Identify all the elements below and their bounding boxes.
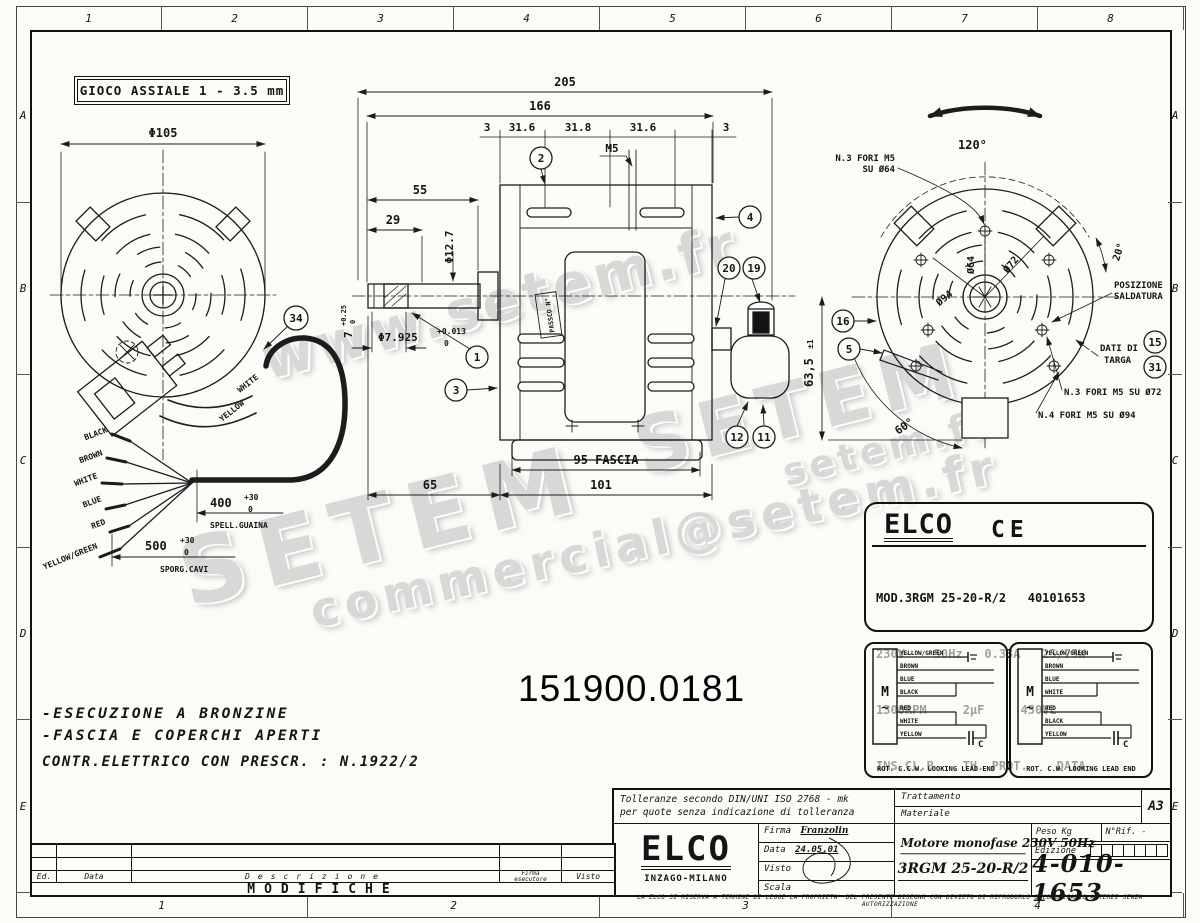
callout-5: 5: [846, 343, 853, 356]
label-saldatura: SALDATURA: [1114, 292, 1163, 302]
ccw-wire-4: BLACK: [900, 689, 918, 696]
data-label: Data: [764, 845, 786, 855]
dim-60deg: 60°: [892, 415, 916, 437]
note-line-1: -ESECUZIONE A BRONZINE: [42, 703, 419, 725]
title-elco-logo: ELCO: [641, 832, 731, 870]
ac-symbol: ~: [881, 701, 889, 716]
mod-data-label: Data: [57, 871, 132, 883]
terminal-box: [78, 329, 193, 436]
dim-key-dn: 0: [349, 320, 357, 324]
dim-500-dn: 0: [184, 548, 189, 557]
nameplate-line-1: MOD.3RGM 25-20-R/2 40101653: [876, 589, 1142, 608]
left-view: Φ105 400 +30 0 SPELL.GUAINA 500 +30 0 SP…: [42, 126, 345, 574]
mod-title: MODIFICHE: [32, 883, 614, 895]
drawing-sheet: www.setem.fr SETEM SETEM commercial@sete…: [0, 0, 1200, 923]
cw-wire-4: WHITE: [1045, 689, 1063, 696]
title-block: Tolleranze secondo DIN/UNI ISO 2768 - mk…: [612, 788, 1172, 897]
dim-o94: Ø94: [933, 288, 955, 309]
cw-wire-1: YELLOW/GREEN: [1045, 650, 1089, 657]
callout-11: 11: [757, 431, 771, 444]
wiring-diagram-cw: M ~ YELLOW/GREEN BROWN BLUE WHITE RED BL…: [1009, 642, 1153, 778]
wiring-diagram-ccw: M ~ YELLOW/GREEN BROWN BLUE BLACK RED WH…: [864, 642, 1008, 778]
dim-31-6-b: 31.6: [630, 121, 657, 134]
tolerance-line-2: per quote senza indicazione di tolleranz…: [620, 806, 888, 819]
passco-tag: PASSCO N°: [535, 292, 562, 338]
callout-19: 19: [747, 262, 760, 275]
dim-29: 29: [386, 213, 400, 227]
callout-12: 12: [730, 431, 743, 444]
note-line-3: CONTR.ELETTRICO CON PRESCR. : N.1922/2: [42, 754, 419, 770]
ce-mark: CE: [991, 519, 1029, 542]
dim-63-5: 63,5: [802, 358, 816, 387]
firma-signature: Franzolin: [801, 826, 849, 836]
dim-o64: Ø64: [965, 256, 977, 275]
dim-63-5-tol: ±1: [806, 339, 815, 349]
ccw-caption: ROT. C.C.W. LOOKING LEAD END: [866, 765, 1006, 773]
callout-1: 1: [474, 351, 481, 364]
dim-95-fascia: 95 FASCIA: [573, 453, 639, 467]
dim-205: 205: [554, 75, 576, 89]
callout-4: 4: [747, 211, 754, 224]
motor-symbol: M: [881, 685, 889, 700]
wire-label-black: BLACK: [83, 425, 109, 442]
dim-shaft: Φ7.925: [378, 331, 418, 344]
dim-12-7: Φ12.7: [443, 230, 456, 263]
callout-20: 20: [722, 262, 735, 275]
passco-label: PASSCO N°: [544, 297, 557, 333]
cw-wire-7: YELLOW: [1045, 731, 1067, 738]
front-view: 205 166 3 31.6 31.8 31.6 3 M5: [340, 75, 795, 500]
dim-400-dn: 0: [248, 505, 253, 514]
label-fori94: N.4 FORI M5 SU Ø94: [1038, 410, 1136, 421]
wire-label-brown: BROWN: [78, 448, 104, 465]
dim-3-right: 3: [723, 121, 730, 134]
dim-120deg: 120°: [958, 138, 987, 152]
cw-wire-3: BLUE: [1045, 676, 1060, 683]
dim-key-up: +0.25: [340, 305, 348, 326]
label-fori72: N.3 FORI M5 SU Ø72: [1064, 387, 1162, 398]
dim-105: Φ105: [149, 126, 178, 140]
legal-notice: LA ELCO SI RISERVA A TERMINE DI LEGGE LA…: [612, 894, 1168, 908]
tolerance-line-1: Tolleranze secondo DIN/UNI ISO 2768 - mk: [620, 793, 888, 806]
dim-key-group: 7 +0.25 0: [340, 305, 357, 338]
data-value: 24.05.01: [795, 845, 838, 855]
scala-label: Scala: [764, 883, 791, 893]
ccw-wire-6: WHITE: [900, 718, 918, 725]
dim-101: 101: [590, 478, 612, 492]
notes: -ESECUZIONE A BRONZINE -FASCIA E COPERCH…: [42, 703, 419, 770]
visto-label: Visto: [764, 864, 791, 874]
callout-16: 16: [836, 315, 850, 328]
dim-166: 166: [529, 99, 551, 113]
cw-caption: ROT. C.W. LOOKING LEAD END: [1011, 765, 1151, 773]
gioco-assiale-box: GIOCO ASSIALE 1 - 3.5 mm: [74, 76, 290, 105]
nrif-label: N°Rif. -: [1102, 824, 1171, 841]
dim-31-6-a: 31.6: [509, 121, 536, 134]
format-a3: A3: [1142, 790, 1170, 824]
title-elco-city: INZAGO-MILANO: [614, 874, 758, 884]
callout-3: 3: [453, 384, 460, 397]
cw-wire-5: RED: [1045, 705, 1056, 712]
firma-label: Firma: [764, 826, 791, 836]
ccw-wire-1: YELLOW/GREEN: [900, 650, 944, 657]
trattamento-label: Trattamento: [895, 790, 1142, 807]
peso-label: Peso Kg: [1032, 824, 1102, 841]
wire-label-red: RED: [90, 517, 107, 530]
wire-label-white: WHITE: [73, 471, 99, 488]
dim-55: 55: [413, 183, 427, 197]
label-posizione: POSIZIONE: [1114, 281, 1163, 291]
callout-15: 15: [1148, 336, 1161, 349]
label-targa: TARGA: [1104, 356, 1132, 366]
dim-20deg: 20°: [1111, 242, 1127, 263]
wire-label-yellow-green: YELLOW/GREEN: [42, 541, 99, 571]
part-number: 151900.0181: [518, 668, 745, 710]
dim-400-up: +30: [244, 493, 259, 502]
materiale-label: Materiale: [895, 807, 1142, 824]
cw-wire-6: BLACK: [1045, 718, 1063, 725]
callout-31: 31: [1148, 361, 1162, 374]
drawing-title-1: Motore monofase 230V 50Hz: [900, 837, 1025, 854]
ac-symbol: ~: [1026, 701, 1034, 716]
ccw-wire-5: RED: [900, 705, 911, 712]
dim-shaft-dn: 0: [444, 339, 449, 348]
drawing-title-2: 3RGM 25-20-R/2: [898, 861, 1029, 881]
drawing-number: 4-010-1653: [1032, 860, 1170, 896]
dim-500-up: +30: [180, 536, 195, 545]
label-dati-di: DATI DI: [1100, 344, 1138, 354]
dim-31-8: 31.8: [565, 121, 592, 134]
dim-500: 500: [145, 539, 167, 553]
dim-400: 400: [210, 496, 232, 510]
rear-view: Ø72 Ø64 Ø94 120° 20° 60° 63,5 ±1: [802, 108, 1166, 448]
nameplate: ELCO CE MOD.3RGM 25-20-R/2 40101653 230V…: [864, 502, 1154, 632]
wire-label-blue: BLUE: [82, 494, 103, 509]
label-sporg-cavi: SPORG.CAVI: [160, 565, 208, 574]
dim-3-left: 3: [484, 121, 491, 134]
label-fori64-1: N.3 FORI M5: [835, 154, 895, 164]
terminal-label-white: WHITE: [236, 373, 261, 395]
gioco-assiale-label: GIOCO ASSIALE 1 - 3.5 mm: [77, 79, 287, 102]
mod-visto-label: Visto: [562, 871, 614, 883]
ccw-wire-3: BLUE: [900, 676, 915, 683]
dim-65: 65: [423, 478, 437, 492]
label-fori64-2: SU Ø64: [862, 164, 895, 175]
callout-2: 2: [538, 152, 545, 165]
cw-wire-2: BROWN: [1045, 663, 1063, 670]
note-line-2: -FASCIA E COPERCHI APERTI: [42, 725, 419, 747]
ccw-capacitor: C: [978, 740, 983, 750]
callout-34: 34: [289, 312, 303, 325]
cw-capacitor: C: [1123, 740, 1128, 750]
ccw-wire-7: YELLOW: [900, 731, 922, 738]
dim-key: 7: [342, 331, 355, 338]
mod-ed-label: Ed.: [32, 871, 57, 883]
label-spell-guaina: SPELL.GUAINA: [210, 521, 268, 530]
ccw-wire-2: BROWN: [900, 663, 918, 670]
dim-m5: M5: [605, 142, 618, 155]
elco-logo: ELCO: [884, 511, 953, 542]
mod-firma-label-2: esecutore: [514, 877, 547, 883]
motor-symbol: M: [1026, 685, 1034, 700]
modifiche-table: Ed. Data Descrizione Firma esecutore Vis…: [30, 843, 616, 897]
